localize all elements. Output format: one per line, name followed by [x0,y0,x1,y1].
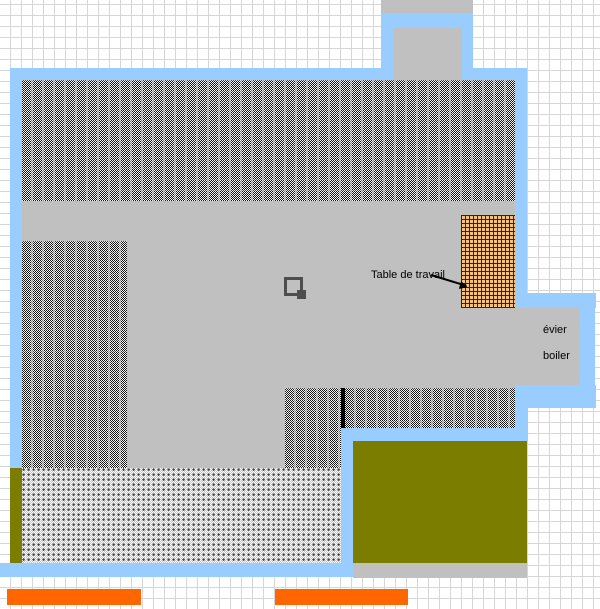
garden-lower-strip [353,563,527,578]
wall-right-upper [515,80,527,293]
annex-floor [515,308,580,385]
sink-label: évier [543,324,567,336]
floor-lower-middle [127,388,285,468]
chimney-flue [393,28,462,80]
garden-area [353,441,527,563]
wall-bottom-right-section [341,428,528,441]
orange-bar-left [7,589,141,605]
boiler-label: boiler [543,350,570,362]
hatched-zone-top [22,80,515,201]
work-table [461,215,515,308]
dither-zone-bottom-left [22,468,341,563]
hatched-zone-right-strip [345,388,515,428]
wall-mid-vertical [341,428,353,577]
left-wall-door-segment [10,468,22,563]
floor-plan-canvas: Table de travail évier boiler [0,0,600,609]
hatched-zone-left-column [22,241,127,468]
orange-bar-right [275,589,408,605]
chimney-cap [381,0,473,13]
wall-left [10,80,22,468]
wall-bottom-left-section [0,563,353,577]
pillar-symbol-dot [297,290,306,299]
partition-line [341,388,345,428]
hatched-zone-center-bottom [285,388,341,468]
